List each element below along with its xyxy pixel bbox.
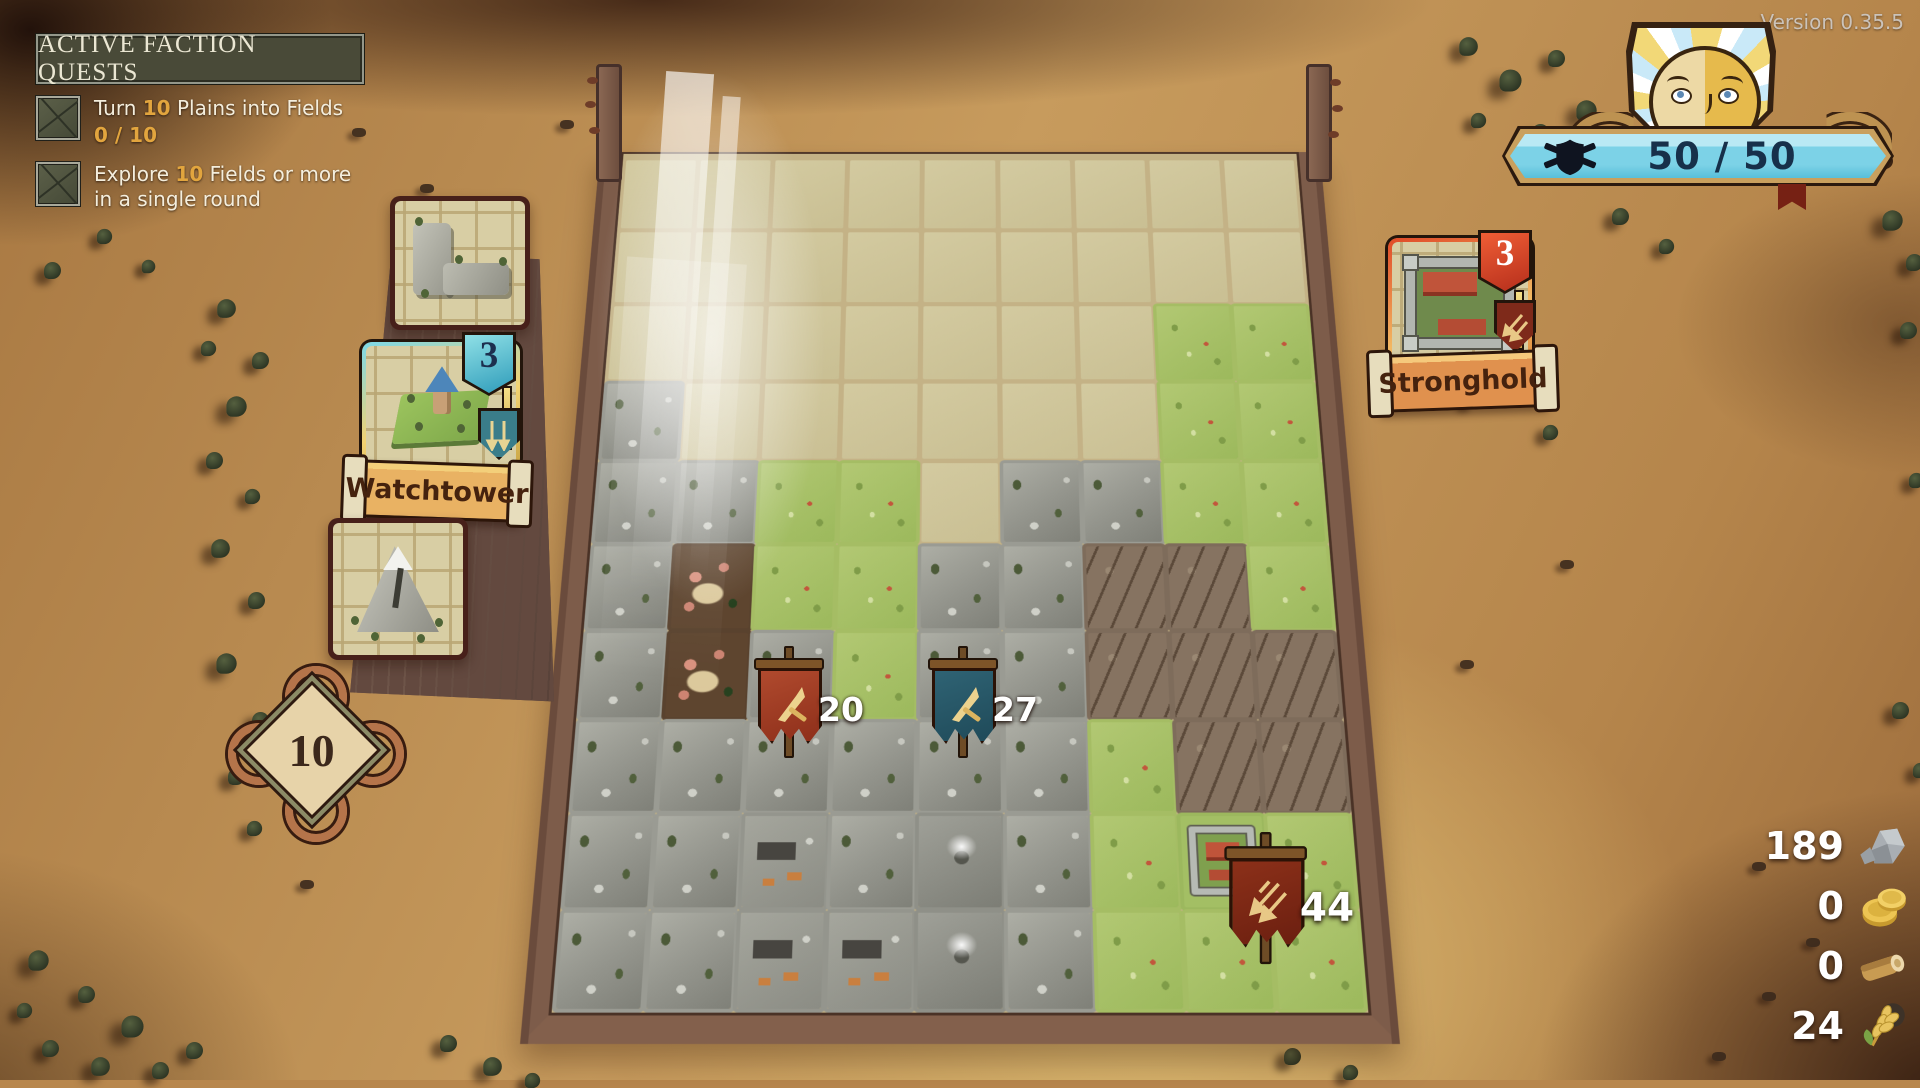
tree-decoration [217,299,236,318]
coins-icon [1856,880,1908,932]
version-label: Version 0.35.5 [1760,10,1904,34]
tree-decoration [1576,100,1596,120]
tree-decoration [44,262,61,279]
army-strength: 44 [1300,884,1354,930]
quest-item: Turn 10 Plains into Fields 0 / 10 [36,96,366,148]
shield-swords-icon [1538,136,1602,176]
resource-gold: 0 [1818,878,1908,934]
quest-panel-title: ACTIVE FACTION QUESTS [38,31,362,87]
quest-text: Turn 10 Plains into Fields [94,96,343,121]
tree-decoration [1900,322,1917,339]
board-corner-post-right [1306,64,1332,182]
army-marker[interactable]: 27 [926,646,1046,766]
tree-decoration [121,1015,143,1037]
wheat-count: 24 [1791,1004,1844,1048]
debris-decoration [1560,560,1574,569]
tree-decoration [186,1042,203,1059]
tree-decoration [42,1040,59,1057]
tree-decoration [1892,702,1909,719]
tree-decoration [28,950,48,970]
tree-decoration [1284,1048,1301,1065]
quest-checkbox-icon[interactable] [36,96,80,140]
tree-decoration [216,653,236,673]
tree-decoration [211,539,230,558]
tree-decoration [1499,69,1521,91]
army-marker[interactable]: 44 [1222,832,1364,974]
wood-count: 0 [1818,944,1844,988]
tree-decoration [17,1003,32,1018]
tree-decoration [97,229,112,244]
tiles-remaining-value: 10 [289,724,335,777]
tree-decoration [78,986,95,1003]
tree-decoration [245,489,260,504]
tiles-remaining-counter: 10 [240,678,376,814]
tree-decoration [1913,763,1920,778]
board-corner-post-left [596,64,622,182]
tree-decoration [1659,239,1674,254]
resource-wood: 0 [1818,938,1908,994]
tree-decoration [247,821,262,836]
quest-progress: 0 / 10 [94,123,343,148]
army-marker[interactable]: 20 [752,646,872,766]
debris-decoration [1460,660,1474,669]
tree-decoration [1459,37,1478,56]
wheat-icon [1856,1000,1908,1052]
morale-bar: 50 / 50 [1502,126,1894,186]
debris-decoration [1762,992,1776,1001]
army-strength: 20 [818,690,864,729]
sword-banner-icon [758,668,822,744]
gold-count: 0 [1818,884,1844,928]
stone-icon [1856,820,1908,872]
game-screen: 202744 ACTIVE FACTION QUESTS Turn 10 Pla… [0,0,1920,1080]
tree-decoration [201,341,216,356]
tree-decoration [1909,473,1920,488]
mountain-art [343,546,453,642]
stronghold-name-banner: Stronghold [1377,349,1549,413]
tree-decoration [248,592,265,609]
tree-decoration [252,352,269,369]
next-tile-card[interactable] [390,196,530,330]
morale-value: 50 / 50 [1647,135,1796,178]
mountain-tile-card[interactable] [328,518,468,660]
resource-wheat: 24 [1791,998,1908,1054]
army-strength: 27 [992,690,1038,729]
quest-text: Explore 10 Fields or more in a single ro… [94,162,366,212]
debris-decoration [420,184,434,193]
tree-decoration [206,452,223,469]
debris-decoration [1712,1052,1726,1061]
tree-decoration [91,1057,110,1076]
watchtower-name-banner: Watchtower [351,459,523,523]
quest-checkbox-icon[interactable] [36,162,80,206]
quest-item: Explore 10 Fields or more in a single ro… [36,162,366,212]
tree-decoration [1543,425,1558,440]
quest-panel-header: ACTIVE FACTION QUESTS [36,34,364,84]
tree-decoration [440,1035,457,1052]
debris-decoration [300,880,314,889]
tree-decoration [152,1062,169,1079]
resource-stone: 189 [1765,818,1908,874]
tree-decoration [1882,210,1902,230]
tree-decoration [226,396,246,416]
wood-log-icon [1856,940,1908,992]
stone-count: 189 [1765,824,1844,868]
tree-decoration [1471,113,1486,128]
tree-decoration [1548,50,1565,67]
tree-decoration [142,260,156,274]
arrows-banner-icon [1229,858,1305,948]
sword-banner-icon [932,668,996,744]
tree-decoration [1906,254,1920,271]
tree-decoration [1612,208,1629,225]
